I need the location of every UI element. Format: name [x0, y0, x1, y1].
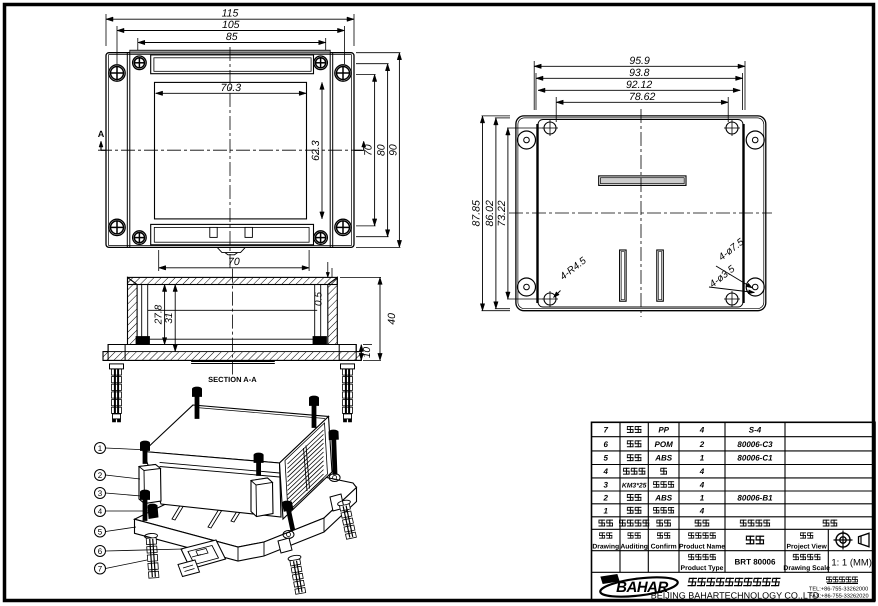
svg-text:2: 2 [98, 471, 103, 480]
svg-text:73.22: 73.22 [496, 200, 508, 226]
svg-text:87.85: 87.85 [471, 200, 483, 226]
svg-text:ABS: ABS [654, 454, 673, 463]
svg-text:Drawing Scale: Drawing Scale [783, 565, 830, 572]
svg-text:27.8: 27.8 [154, 304, 165, 325]
svg-text:70: 70 [228, 256, 240, 268]
svg-text:Product Name: Product Name [679, 544, 725, 551]
svg-text:BEIJING BAHARTECHNOLOGY CO.,LT: BEIJING BAHARTECHNOLOGY CO.,LTD [651, 591, 820, 601]
svg-text:1: 1 [700, 454, 705, 463]
svg-text:FAX:+86-755-33262020: FAX:+86-755-33262020 [809, 594, 869, 600]
svg-text:6: 6 [98, 547, 103, 556]
svg-text:PP: PP [658, 426, 669, 435]
svg-text:POM: POM [655, 440, 674, 449]
svg-text:90: 90 [387, 144, 399, 156]
svg-text:6: 6 [604, 440, 609, 449]
svg-text:Drawing: Drawing [592, 544, 619, 551]
svg-text:4: 4 [699, 506, 705, 515]
svg-text:86.02: 86.02 [484, 200, 496, 226]
svg-text:1: 1 (MM): 1: 1 (MM) [831, 558, 872, 569]
svg-text:7: 7 [604, 426, 609, 435]
svg-text:70.3: 70.3 [221, 82, 242, 94]
svg-text:92.12: 92.12 [626, 79, 652, 91]
svg-text:80006-C3: 80006-C3 [737, 440, 773, 449]
svg-text:5: 5 [98, 527, 103, 536]
svg-text:7: 7 [98, 564, 103, 573]
svg-text:80: 80 [376, 144, 388, 156]
svg-text:4: 4 [699, 467, 705, 476]
svg-text:Project View: Project View [787, 544, 828, 551]
svg-text:TEL:+86-755-33262000: TEL:+86-755-33262000 [809, 587, 868, 593]
svg-text:ABS: ABS [654, 493, 673, 502]
svg-text:4: 4 [98, 507, 103, 516]
svg-text:78.62: 78.62 [629, 91, 655, 103]
svg-text:10: 10 [362, 346, 373, 358]
svg-text:3: 3 [604, 480, 609, 489]
svg-text:80006-C1: 80006-C1 [737, 454, 773, 463]
svg-text:105: 105 [222, 19, 240, 31]
svg-text:1: 1 [604, 506, 609, 515]
svg-text:95.9: 95.9 [629, 55, 650, 67]
svg-text:4: 4 [699, 426, 705, 435]
svg-text:0.5: 0.5 [314, 292, 325, 306]
svg-text:85: 85 [226, 31, 238, 43]
svg-text:115: 115 [222, 8, 239, 20]
svg-text:BRT 80006: BRT 80006 [735, 558, 776, 567]
svg-text:SECTION A-A: SECTION A-A [208, 375, 257, 384]
svg-text:93.8: 93.8 [629, 67, 650, 79]
svg-text:S-4: S-4 [749, 426, 762, 435]
svg-text:5: 5 [604, 454, 609, 463]
svg-text:62.3: 62.3 [310, 140, 322, 161]
svg-text:4: 4 [699, 480, 705, 489]
svg-text:Product Type: Product Type [681, 565, 724, 572]
svg-text:2: 2 [603, 493, 609, 502]
svg-text:1: 1 [700, 493, 705, 502]
svg-text:2: 2 [699, 440, 705, 449]
svg-text:80006-B1: 80006-B1 [737, 493, 773, 502]
svg-text:Auditing: Auditing [620, 544, 648, 551]
svg-text:3: 3 [98, 489, 103, 498]
svg-text:Confirm: Confirm [651, 544, 677, 551]
svg-text:A: A [98, 129, 105, 139]
svg-text:4: 4 [603, 467, 609, 476]
svg-text:1: 1 [98, 444, 103, 453]
svg-text:40: 40 [386, 313, 398, 325]
svg-text:31: 31 [164, 312, 175, 323]
svg-text:KM3*25: KM3*25 [622, 482, 647, 489]
